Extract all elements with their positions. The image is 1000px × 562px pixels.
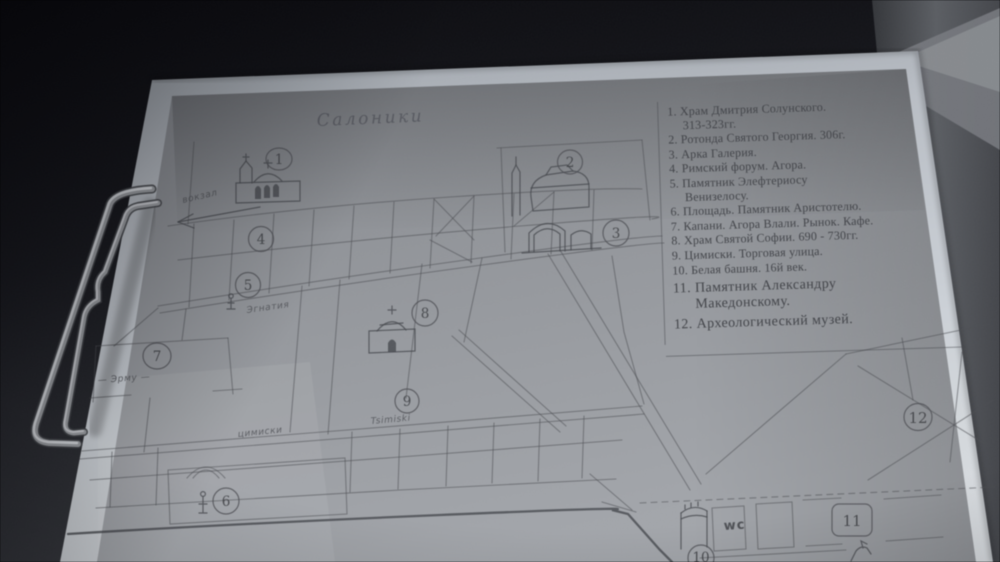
photo-scene: 1 2 3 4 5 6 7 8 9 10 11 12 Салоники вокз… bbox=[0, 0, 1000, 562]
legend: 1. Храм Дмитрия Солунского.313-323гг.2. … bbox=[657, 92, 974, 345]
legend-list: 1. Храм Дмитрия Солунского.313-323гг.2. … bbox=[667, 96, 974, 333]
legend-item: 11. Памятник АлександруМакедонскому. bbox=[673, 272, 974, 313]
